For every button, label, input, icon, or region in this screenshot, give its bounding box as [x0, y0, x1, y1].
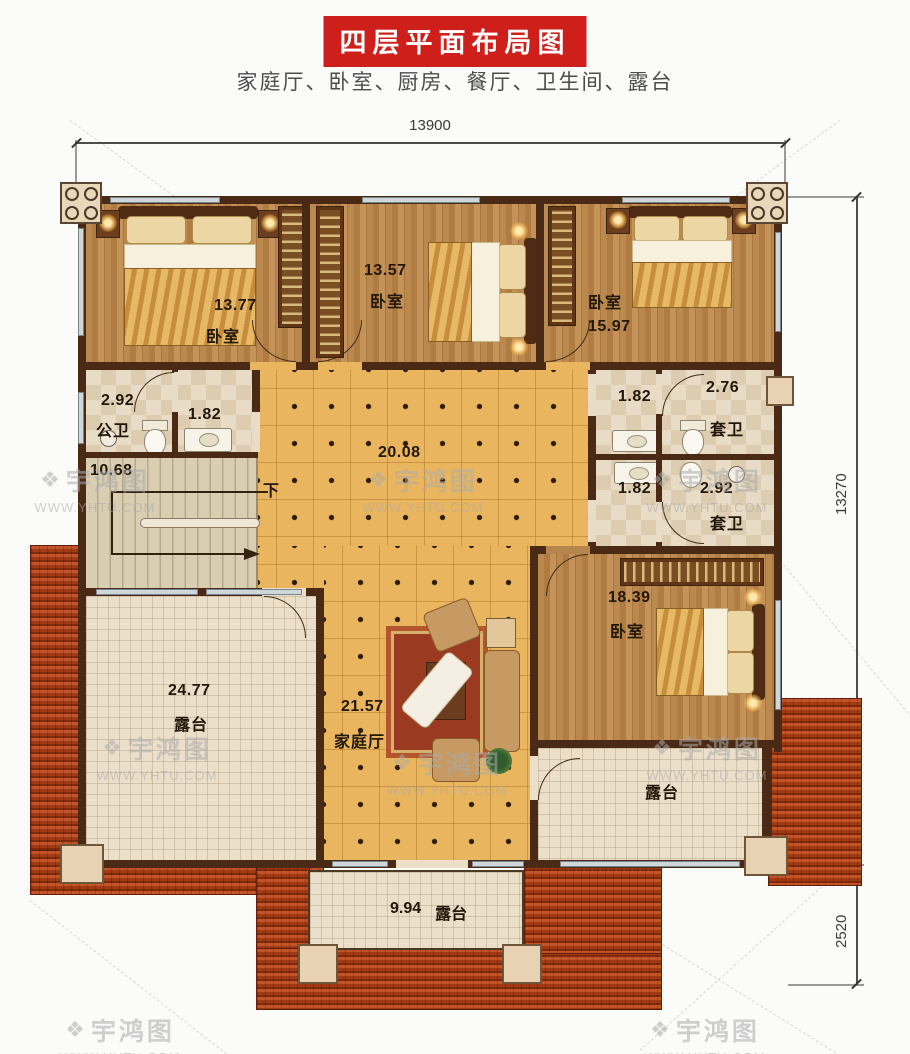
door-opening: [252, 412, 260, 452]
window: [560, 861, 740, 867]
stairs-down-label: 下: [263, 477, 280, 501]
toilet-icon: [682, 429, 704, 456]
door-opening: [250, 362, 296, 370]
lamp-icon: [510, 222, 528, 240]
lamp-icon: [609, 211, 627, 229]
vanity-sink: [184, 428, 232, 452]
watermark: ❖宇鸿图 WWW.YHTU.COM: [30, 1012, 210, 1054]
dimension-line-top: [75, 142, 786, 144]
page-subtitle: 家庭厅、卧室、厨房、餐厅、卫生间、露台: [0, 66, 910, 96]
room-area: 18.39: [608, 589, 651, 607]
terrace-bottom-label: 9.94 露台: [390, 900, 467, 924]
watermark-brand: 宇鸿图: [91, 1012, 175, 1048]
toilet-icon: [680, 462, 702, 488]
door-opening: [588, 500, 596, 542]
bed-blanket: [656, 608, 704, 696]
room-name: 卧室: [370, 288, 404, 312]
pillow: [726, 610, 754, 652]
pillow: [634, 216, 680, 242]
room-name: 家庭厅: [334, 728, 385, 752]
watermark-logo-icon: ❖: [65, 1017, 85, 1043]
chimney-flue-icon: [746, 182, 788, 224]
room-area: 2.92: [700, 480, 733, 498]
page-title: 四层平面布局图: [324, 16, 587, 67]
pillow: [498, 244, 526, 290]
pillar: [744, 836, 788, 876]
armchair: [432, 738, 480, 782]
dimension-top-value: 13900: [380, 117, 480, 134]
door-opening: [546, 362, 590, 370]
room-name: 卧室: [610, 618, 644, 642]
lamp-icon: [744, 694, 762, 712]
watermark-brand: 宇鸿图: [676, 1012, 760, 1048]
room-name: 露台: [174, 711, 208, 735]
room-area: 13.57: [364, 262, 407, 280]
room-name: 露台: [645, 779, 679, 803]
plant-icon: [486, 748, 512, 774]
wall-segment: [302, 204, 310, 362]
window: [622, 197, 730, 203]
floorplan-page: 四层平面布局图 家庭厅、卧室、厨房、餐厅、卫生间、露台 13900 13270 …: [0, 0, 910, 1054]
room-name: 卧室: [206, 323, 240, 347]
room-area: 21.57: [341, 698, 384, 716]
lamp-icon: [261, 214, 279, 232]
wall-segment: [596, 454, 774, 460]
roof-left: [30, 545, 80, 895]
room-name: 露台: [435, 900, 467, 924]
window: [472, 861, 524, 867]
lamp-icon: [744, 588, 762, 606]
window: [110, 197, 220, 203]
chimney-flue-icon: [60, 182, 102, 224]
wardrobe: [548, 206, 576, 326]
window: [332, 861, 388, 867]
room-area: 1.82: [618, 388, 651, 406]
bed-sheet: [470, 242, 500, 342]
pillar: [60, 844, 104, 884]
pillow: [726, 652, 754, 694]
room-name: 套卫: [710, 416, 744, 440]
pillow: [682, 216, 728, 242]
wall-flue-box: [766, 376, 794, 406]
watermark-logo-icon: ❖: [40, 467, 60, 493]
pillow: [126, 216, 186, 244]
window: [78, 392, 84, 444]
room-name: 公卫: [96, 417, 130, 441]
lamp-icon: [510, 338, 528, 356]
door-opening: [656, 502, 662, 542]
sofa: [484, 650, 520, 752]
door-opening: [396, 860, 468, 868]
window: [206, 589, 302, 595]
wall-segment: [316, 596, 324, 860]
dimension-right-value: 13270: [833, 473, 850, 515]
room-area: 2.76: [706, 379, 739, 397]
room-area: 24.77: [168, 682, 211, 700]
room-area: 2.92: [101, 392, 134, 410]
room-area: 20.08: [378, 444, 421, 462]
door-opening: [530, 756, 538, 800]
bed-blanket: [428, 242, 472, 342]
pillar: [502, 944, 542, 984]
window: [775, 232, 781, 332]
floor-hall: [258, 370, 588, 546]
room-area: 10.68: [90, 462, 133, 480]
pillar: [298, 944, 338, 984]
dimension-bottom-right-value: 2520: [833, 915, 850, 948]
wall-segment: [86, 362, 774, 370]
wall-segment: [538, 740, 774, 748]
window: [775, 600, 781, 710]
door-opening: [318, 362, 362, 370]
background-dashed-line: [30, 900, 267, 1054]
wall-segment: [530, 546, 538, 860]
window: [96, 589, 198, 595]
pillow: [498, 292, 526, 338]
room-name: 卧室: [588, 289, 622, 313]
side-table: [486, 618, 516, 648]
bed-blanket: [632, 262, 732, 308]
door-opening: [656, 374, 662, 414]
wardrobe: [620, 558, 764, 586]
window: [78, 228, 84, 336]
door-opening: [588, 374, 596, 416]
roof-terrace-bottom-east: [524, 862, 662, 954]
bed-sheet: [700, 608, 728, 696]
window: [362, 197, 480, 203]
wall-segment: [86, 452, 258, 458]
watermark-url: WWW.YHTU.COM: [30, 1050, 210, 1054]
stair-direction-arrow: [96, 470, 276, 566]
door-opening: [546, 546, 590, 554]
room-area: 1.82: [188, 406, 221, 424]
room-area: 1.82: [618, 480, 651, 498]
watermark-url: WWW.YHTU.COM: [615, 1050, 795, 1054]
room-area: 13.77: [214, 297, 257, 315]
room-name: 套卫: [710, 510, 744, 534]
room-area: 15.97: [588, 318, 631, 336]
vanity-sink: [612, 430, 660, 452]
room-area: 9.94: [390, 900, 421, 924]
pillow: [192, 216, 252, 244]
wall-segment: [536, 204, 544, 362]
